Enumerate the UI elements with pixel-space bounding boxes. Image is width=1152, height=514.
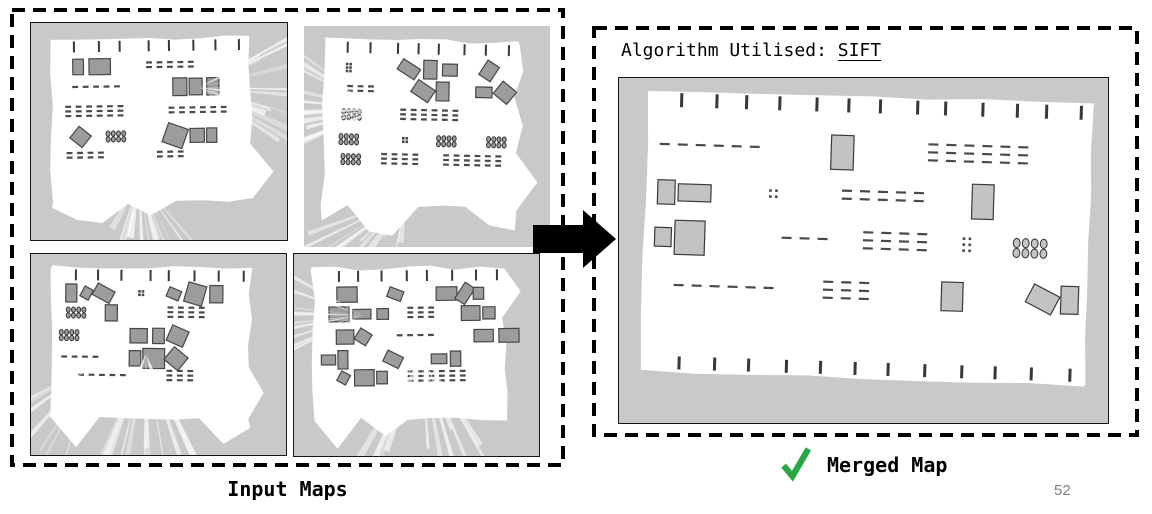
algorithm-name: SIFT [838, 40, 881, 61]
input-map-top-left [30, 22, 288, 241]
input-map-top-right [304, 26, 550, 247]
input-maps-label: Input Maps [10, 477, 565, 501]
algorithm-title-prefix: Algorithm Utilised: [621, 40, 838, 61]
merged-map-caption: Merged Map [781, 444, 947, 486]
input-map-bottom-right [293, 253, 540, 457]
algorithm-title: Algorithm Utilised: SIFT [621, 39, 881, 62]
page-number: 52 [1054, 482, 1071, 499]
input-map-bottom-left [30, 253, 287, 456]
arrow-right-icon [533, 208, 617, 270]
slide: Algorithm Utilised: SIFT Input Maps Merg… [0, 0, 1152, 514]
merged-map-caption-text: Merged Map [827, 453, 947, 477]
merged-map [618, 77, 1109, 424]
checkmark-icon [781, 444, 811, 486]
